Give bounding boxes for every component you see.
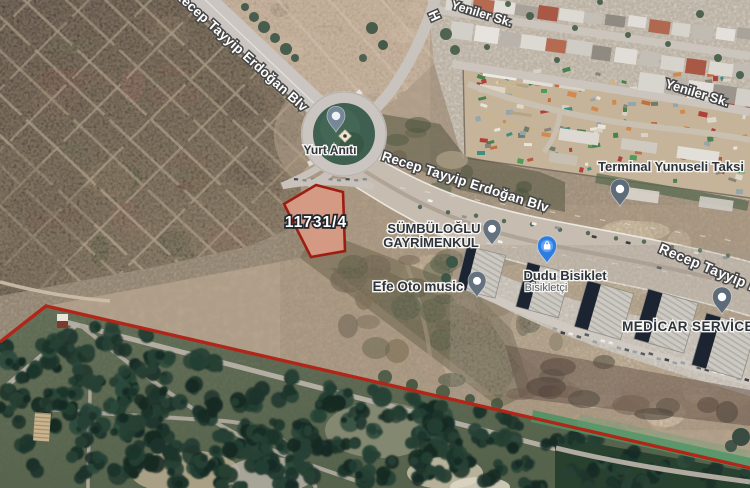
svg-text:Yurt Anıtı: Yurt Anıtı (304, 143, 357, 157)
svg-text:11731/4: 11731/4 (285, 214, 347, 231)
svg-text:GAYRİMENKUL: GAYRİMENKUL (383, 235, 479, 250)
svg-text:Dudu Bisiklet: Dudu Bisiklet (523, 268, 607, 283)
svg-text:SÜMBÜLOĞLU: SÜMBÜLOĞLU (387, 221, 480, 236)
svg-text:Efe Oto music: Efe Oto music (373, 279, 464, 294)
svg-text:Bisikletçi: Bisikletçi (525, 282, 568, 294)
svg-text:Terminal Yunuseli Taksi: Terminal Yunuseli Taksi (598, 159, 744, 174)
svg-text:MEDİCAR SERVİCE: MEDİCAR SERVİCE (622, 319, 750, 334)
